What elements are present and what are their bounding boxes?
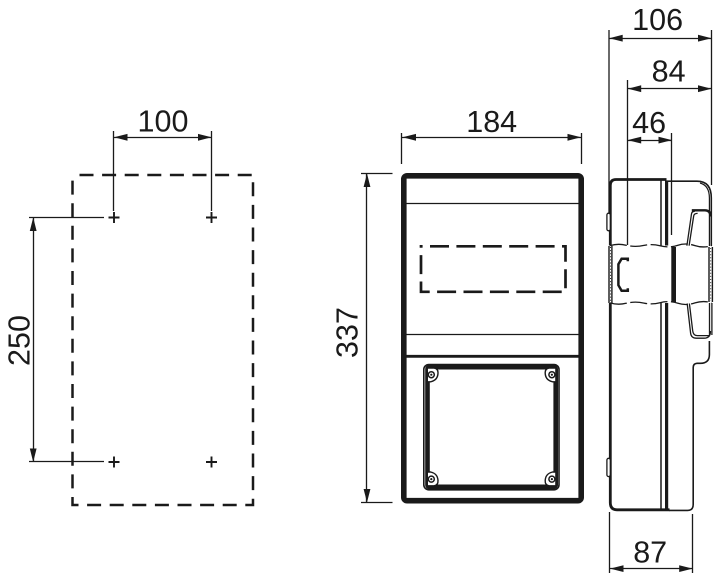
svg-text:250: 250 — [3, 315, 37, 366]
svg-text:87: 87 — [633, 535, 667, 569]
svg-text:100: 100 — [138, 105, 189, 139]
svg-text:46: 46 — [632, 106, 666, 140]
svg-text:184: 184 — [466, 105, 517, 139]
svg-text:84: 84 — [652, 55, 686, 89]
svg-text:106: 106 — [632, 3, 683, 37]
svg-text:337: 337 — [331, 307, 365, 358]
